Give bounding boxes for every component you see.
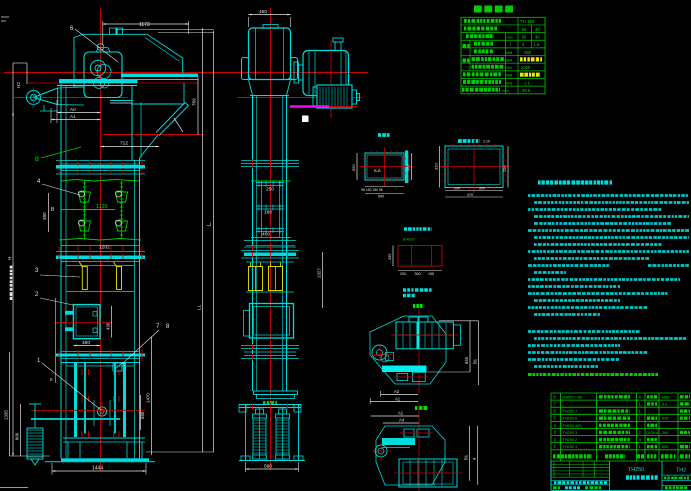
svg-text:25: 25 — [522, 27, 527, 32]
svg-text:1.6: 1.6 — [534, 42, 540, 47]
svg-text:845: 845 — [464, 356, 469, 364]
svg-text:TH2: TH2 — [676, 468, 686, 474]
svg-text:A2: A2 — [394, 389, 400, 394]
svg-text:550: 550 — [351, 164, 356, 171]
svg-text:A1: A1 — [395, 396, 401, 401]
svg-text:320: 320 — [434, 163, 439, 170]
svg-text:590: 590 — [264, 464, 272, 470]
svg-text:635: 635 — [662, 417, 668, 421]
svg-text:MM: MM — [506, 74, 512, 78]
svg-text:300: 300 — [479, 187, 485, 191]
svg-text:9.0: 9.0 — [662, 402, 667, 406]
svg-text:200: 200 — [400, 272, 406, 276]
svg-text:B1: B1 — [464, 454, 469, 460]
svg-text:1:10: 1:10 — [483, 140, 490, 144]
svg-text:40: 40 — [535, 35, 540, 40]
svg-text:M/S: M/S — [506, 81, 513, 85]
svg-text:450: 450 — [259, 9, 267, 15]
svg-text:250: 250 — [502, 165, 507, 172]
svg-text:180: 180 — [264, 210, 272, 216]
svg-text:1.1: 1.1 — [524, 80, 530, 85]
svg-text:A4: A4 — [399, 418, 405, 423]
svg-text:A0: A0 — [70, 107, 76, 112]
svg-text:98 150 150 98: 98 150 150 98 — [361, 188, 383, 192]
svg-text:l: l — [510, 42, 511, 47]
svg-text:/min: /min — [502, 89, 509, 93]
svg-text:690: 690 — [378, 194, 384, 198]
svg-text:800: 800 — [15, 432, 20, 440]
svg-text:B1: B1 — [473, 358, 478, 364]
svg-text:48.5: 48.5 — [522, 88, 531, 93]
svg-text:MM: MM — [506, 51, 512, 55]
svg-text:H2: H2 — [16, 82, 21, 88]
svg-text:470: 470 — [467, 193, 473, 197]
svg-text:450: 450 — [524, 50, 532, 55]
svg-text:400: 400 — [262, 232, 270, 238]
svg-text:712: 712 — [120, 141, 128, 147]
svg-text:II: II — [50, 377, 53, 382]
svg-text:655: 655 — [662, 445, 668, 449]
svg-text:1173: 1173 — [139, 22, 150, 28]
svg-text:TH250.7: TH250.7 — [563, 410, 578, 414]
svg-text:1335: 1335 — [4, 410, 9, 420]
svg-text:769: 769 — [192, 98, 197, 106]
svg-text:TH250.2: TH250.2 — [563, 438, 578, 442]
svg-text:TH 160: TH 160 — [520, 19, 535, 24]
svg-text:B: B — [35, 157, 39, 163]
svg-text:335: 335 — [388, 254, 392, 260]
svg-text:TH250.6: TH250.6 — [563, 417, 578, 421]
svg-text:250: 250 — [266, 187, 274, 193]
svg-text:300: 300 — [415, 272, 421, 276]
svg-text:1444: 1444 — [92, 466, 103, 472]
svg-text:8-M10: 8-M10 — [403, 237, 415, 242]
svg-text:TH250.1: TH250.1 — [563, 445, 578, 449]
svg-text:480: 480 — [82, 340, 90, 346]
svg-text:430: 430 — [106, 322, 111, 330]
svg-text:480: 480 — [42, 212, 47, 220]
svg-text:Q235-A: Q235-A — [646, 431, 659, 435]
svg-text:M20: M20 — [662, 395, 669, 399]
svg-text:TH250: TH250 — [628, 467, 644, 473]
svg-text:≥320: ≥320 — [521, 65, 531, 70]
svg-text:mm: mm — [507, 36, 513, 40]
svg-text:550: 550 — [140, 411, 145, 419]
svg-text:200: 200 — [454, 187, 460, 191]
svg-text:1327: 1327 — [317, 268, 322, 278]
svg-text:360: 360 — [406, 164, 411, 171]
svg-text:B-B: B-B — [374, 168, 381, 173]
svg-text:MM: MM — [506, 58, 512, 62]
svg-text:1202: 1202 — [99, 245, 110, 251]
svg-text:KN: KN — [507, 66, 513, 70]
svg-text:H: H — [7, 257, 12, 260]
svg-text:40: 40 — [535, 27, 540, 32]
svg-text:A1: A1 — [398, 411, 404, 416]
svg-text:1470: 1470 — [145, 393, 150, 403]
svg-text:1120: 1120 — [96, 204, 108, 210]
svg-text:155: 155 — [428, 272, 434, 276]
svg-text:A1: A1 — [70, 114, 76, 119]
svg-text:264: 264 — [662, 431, 668, 435]
svg-text:30: 30 — [522, 35, 527, 40]
svg-text:L1: L1 — [197, 304, 202, 310]
svg-text:TH250.3: TH250.3 — [563, 431, 578, 435]
svg-text:TH250.4(5): TH250.4(5) — [563, 424, 583, 428]
svg-text:GB5027-86: GB5027-86 — [563, 395, 582, 399]
